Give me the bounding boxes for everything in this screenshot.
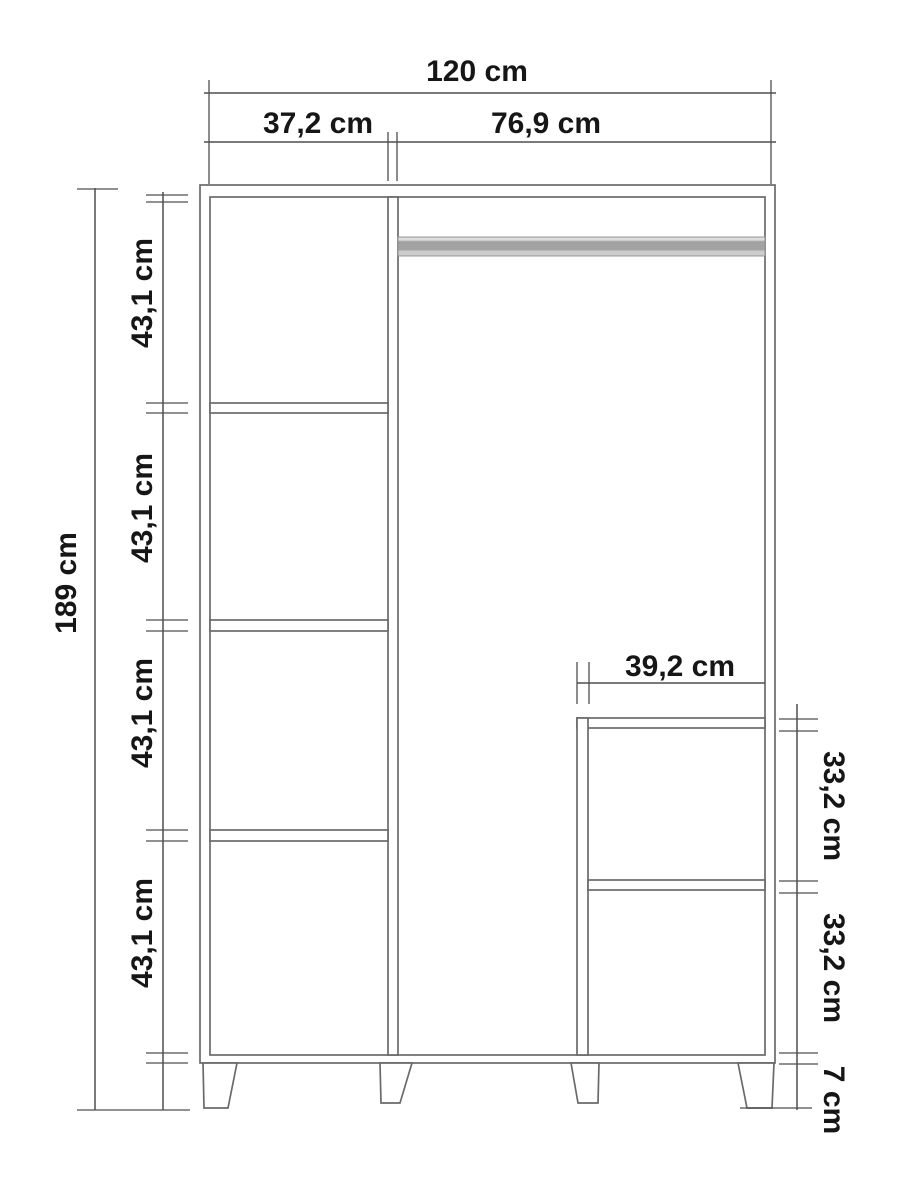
label-shelf-2-height: 43,1 cm — [126, 453, 159, 563]
label-shelf-4-height: 43,1 cm — [126, 878, 159, 988]
hanging-rail — [398, 237, 765, 256]
center-divider-panel — [388, 197, 398, 1055]
left-shelf-2 — [210, 620, 388, 631]
canvas-background — [0, 0, 897, 1200]
compartment-top-panel — [577, 718, 765, 728]
left-shelf-3 — [210, 830, 388, 841]
label-shelf-1-height: 43,1 cm — [126, 238, 159, 348]
label-leg-height: 7 cm — [817, 1066, 850, 1134]
label-left-section-width: 37,2 cm — [263, 107, 373, 140]
label-total-width: 120 cm — [426, 55, 528, 88]
label-compartment-width: 39,2 cm — [625, 650, 735, 683]
label-total-height: 189 cm — [50, 532, 83, 634]
label-compartment-upper-height: 33,2 cm — [817, 751, 850, 861]
compartment-shelf — [588, 880, 765, 890]
wardrobe-dimension-diagram: 120 cm 37,2 cm 76,9 cm 189 cm 43,1 cm 43… — [0, 0, 897, 1200]
compartment-side-panel — [577, 718, 588, 1055]
diagram-page: 120 cm 37,2 cm 76,9 cm 189 cm 43,1 cm 43… — [0, 0, 897, 1200]
label-shelf-3-height: 43,1 cm — [126, 658, 159, 768]
left-shelf-1 — [210, 403, 388, 413]
label-compartment-lower-height: 33,2 cm — [817, 913, 850, 1023]
label-right-section-width: 76,9 cm — [491, 107, 601, 140]
